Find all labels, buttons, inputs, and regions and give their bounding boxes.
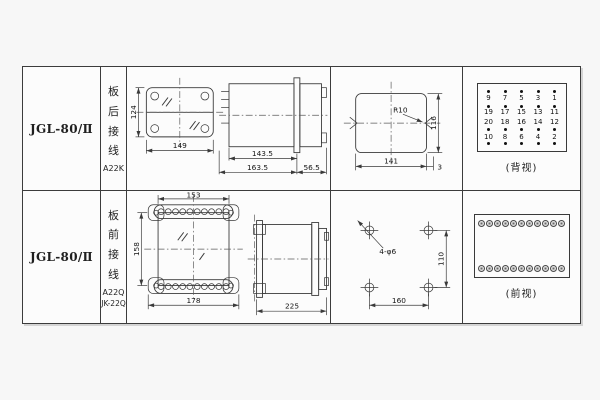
terminal-number: 14 — [534, 119, 543, 126]
clip — [253, 284, 265, 294]
terminal-number: 18 — [501, 119, 510, 126]
terminal-row: 9 7 5 3 1 — [483, 90, 561, 102]
terminal-dot — [504, 90, 507, 93]
terminal-screw — [550, 265, 557, 272]
terminal-number: 8 — [503, 134, 507, 141]
cutout-view: R10 116 141 3 — [343, 81, 441, 171]
view-caption-rear: (背视) — [506, 159, 538, 174]
cell-model-row2: JGL-80/Ⅱ — [23, 191, 101, 323]
terminal-screw — [526, 265, 533, 272]
terminal-dot — [487, 142, 490, 145]
clip — [321, 87, 326, 97]
cell-drill-plan: 4-φ6 110 160 — [331, 191, 463, 323]
dim-label: 3 — [437, 162, 442, 171]
dimension-bottom-width: 178 — [148, 294, 239, 309]
dimension-spec-table: JGL-80/Ⅱ 板后接线 A22K — [22, 66, 581, 324]
terminal-dot — [537, 90, 540, 93]
row1-front-and-side-view-drawing: 124 149 — [128, 68, 330, 190]
model-name: JGL-80/Ⅱ — [30, 250, 93, 264]
terminal-screw — [550, 220, 557, 227]
dim-label: 158 — [131, 242, 140, 256]
dim-label: 149 — [172, 141, 186, 150]
clip — [253, 224, 265, 234]
terminal-row: 10 8 6 4 2 — [483, 134, 561, 146]
terminal-number: 17 — [501, 109, 510, 116]
terminal-row: 19 17 15 13 11 — [483, 105, 561, 117]
mounting-hole — [150, 124, 158, 132]
wiring-code-2: JK-22Q — [101, 299, 126, 309]
terminal-dot — [553, 142, 556, 145]
terminal-pins — [221, 91, 229, 122]
terminal-number: 4 — [536, 134, 540, 141]
dim-label: 160 — [391, 296, 405, 305]
front-view: 124 149 — [129, 77, 223, 153]
front-view: 153 158 178 — [131, 191, 242, 309]
terminal-number: 5 — [519, 95, 523, 102]
terminal-dot — [487, 128, 490, 131]
wiring-type-label: 板后接线 — [107, 82, 120, 161]
dim-label: 116 — [428, 115, 437, 129]
terminal-dot — [520, 142, 523, 145]
dim-label: 163.5 — [246, 162, 267, 171]
terminal-dot — [537, 142, 540, 145]
front-terminal-box — [474, 214, 570, 278]
dim-label: 143.5 — [251, 149, 272, 158]
terminal-number: 6 — [519, 134, 523, 141]
terminal-dot — [553, 90, 556, 93]
dimension-top-width: 153 — [158, 191, 229, 204]
radius-label: R10 — [393, 105, 408, 114]
terminal-screw — [478, 220, 485, 227]
terminal-screw — [494, 220, 501, 227]
radius-leader — [402, 114, 422, 122]
terminal-screw — [486, 220, 493, 227]
panel-cutout-drawing: R10 116 141 3 — [332, 68, 462, 190]
terminal-number: 2 — [552, 134, 556, 141]
terminal-screw — [510, 265, 517, 272]
terminal-dot — [537, 128, 540, 131]
dimension-front-depth: 56.5 — [296, 147, 326, 174]
glass-hatch-marks — [162, 97, 199, 129]
cell-terminals-rear: 9 7 5 3 1 19 17 15 13 11 20 18 16 14 12 — [463, 67, 580, 191]
terminal-screw — [478, 265, 485, 272]
cell-wiring-row2: 板前接线 A22Q JK-22Q — [101, 191, 127, 323]
wiring-code: A22Q — [103, 288, 125, 299]
terminal-dot — [487, 90, 490, 93]
terminal-screw — [526, 220, 533, 227]
terminal-screw — [494, 265, 501, 272]
hole-callout-label: 4-φ6 — [379, 247, 396, 256]
drill-holes: 4-φ6 110 160 — [357, 221, 450, 310]
terminal-number: 9 — [486, 95, 490, 102]
mounting-hole — [150, 92, 158, 100]
terminal-number: 1 — [552, 95, 556, 102]
terminal-screw — [486, 265, 493, 272]
terminal-screw — [534, 265, 541, 272]
terminal-screw — [542, 220, 549, 227]
view-caption-front: (前视) — [506, 285, 538, 300]
terminal-dot — [553, 128, 556, 131]
side-view: 225 — [247, 215, 328, 315]
cell-terminals-front: (前视) — [463, 191, 580, 323]
side-view: 143.5 163.5 56.5 — [219, 77, 327, 173]
terminal-dot — [520, 128, 523, 131]
terminal-screw — [502, 220, 509, 227]
dim-label: 110 — [436, 252, 445, 266]
terminal-dot — [504, 142, 507, 145]
model-name: JGL-80/Ⅱ — [30, 122, 93, 136]
terminal-number: 19 — [484, 109, 493, 116]
terminal-screw — [502, 265, 509, 272]
cell-views-row2: 153 158 178 — [127, 191, 331, 323]
row2-front-and-side-view-drawing: 153 158 178 — [128, 191, 330, 323]
cell-wiring-row1: 板后接线 A22K — [101, 67, 127, 191]
terminal-screw — [542, 265, 549, 272]
dimension-vertical-pitch: 110 — [434, 230, 450, 287]
dimension-edge-gap: 3 — [426, 156, 442, 171]
terminal-number: 15 — [517, 109, 526, 116]
mounting-hole — [200, 124, 208, 132]
terminal-number: 7 — [503, 95, 507, 102]
hole-callout-leader — [357, 221, 383, 249]
wiring-type-label: 板前接线 — [107, 206, 120, 285]
terminal-number: 12 — [550, 119, 559, 126]
dim-label: 124 — [129, 104, 138, 118]
clip — [321, 132, 326, 142]
terminal-number: 13 — [534, 109, 543, 116]
terminal-screw — [518, 265, 525, 272]
dimension-horizontal-pitch: 160 — [369, 293, 428, 309]
mounting-hole — [200, 92, 208, 100]
terminal-screw — [558, 220, 565, 227]
dim-label: 141 — [384, 156, 398, 165]
terminal-number: 3 — [536, 95, 540, 102]
terminal-row: 20 18 16 14 12 — [483, 119, 561, 131]
dim-label: 153 — [186, 191, 200, 200]
terminal-dot — [504, 128, 507, 131]
terminal-dot — [520, 90, 523, 93]
terminal-number: 10 — [484, 134, 493, 141]
dim-label: 178 — [186, 296, 200, 305]
cell-cutout-row1: R10 116 141 3 — [331, 67, 463, 191]
terminal-number: 16 — [517, 119, 526, 126]
dim-label: 225 — [285, 302, 299, 311]
screw-row — [478, 265, 566, 272]
dimension-total-depth: 225 — [256, 297, 326, 315]
cell-views-row1: 124 149 — [127, 67, 331, 191]
rear-terminal-grid: 9 7 5 3 1 19 17 15 13 11 20 18 16 14 12 — [477, 83, 567, 152]
drilling-plan-drawing: 4-φ6 110 160 — [332, 191, 462, 323]
terminal-screw — [510, 220, 517, 227]
dimension-width-149: 149 — [146, 139, 213, 153]
terminal-number: 20 — [484, 119, 493, 126]
dim-label: 56.5 — [303, 162, 320, 171]
terminal-screw — [518, 220, 525, 227]
terminal-screw — [534, 220, 541, 227]
screw-row — [478, 220, 566, 227]
terminal-screw — [558, 265, 565, 272]
glass-hatch-marks — [177, 232, 204, 260]
wiring-code: A22K — [103, 164, 124, 175]
dimension-cutout-width: 141 — [355, 153, 426, 170]
terminal-number: 11 — [550, 109, 559, 116]
cell-model-row1: JGL-80/Ⅱ — [23, 67, 101, 191]
